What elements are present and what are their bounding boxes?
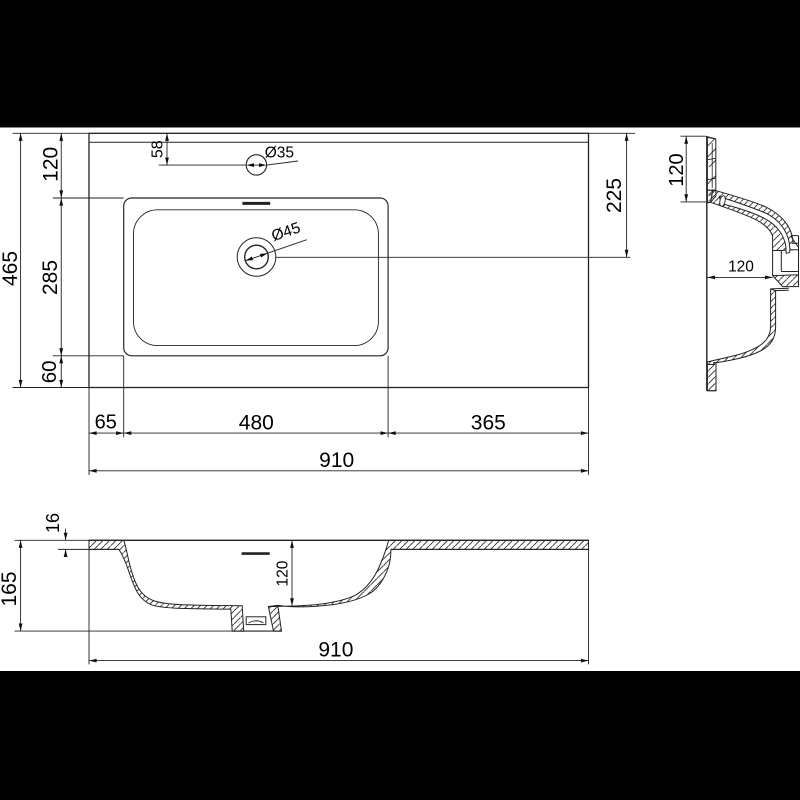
svg-text:Ø35: Ø35 [265,145,294,162]
svg-text:120: 120 [666,153,688,186]
svg-text:65: 65 [95,411,117,433]
svg-text:120: 120 [274,560,291,586]
svg-text:910: 910 [318,639,353,662]
svg-text:58: 58 [150,140,167,158]
svg-text:120: 120 [40,147,63,182]
svg-text:60: 60 [38,360,61,383]
svg-text:480: 480 [239,411,274,434]
svg-text:365: 365 [471,411,506,434]
svg-text:165: 165 [0,571,21,606]
svg-text:120: 120 [728,259,754,276]
svg-text:16: 16 [43,513,63,533]
svg-text:225: 225 [603,178,626,213]
svg-text:465: 465 [0,251,22,286]
svg-text:910: 910 [319,449,354,472]
svg-text:285: 285 [39,260,62,295]
